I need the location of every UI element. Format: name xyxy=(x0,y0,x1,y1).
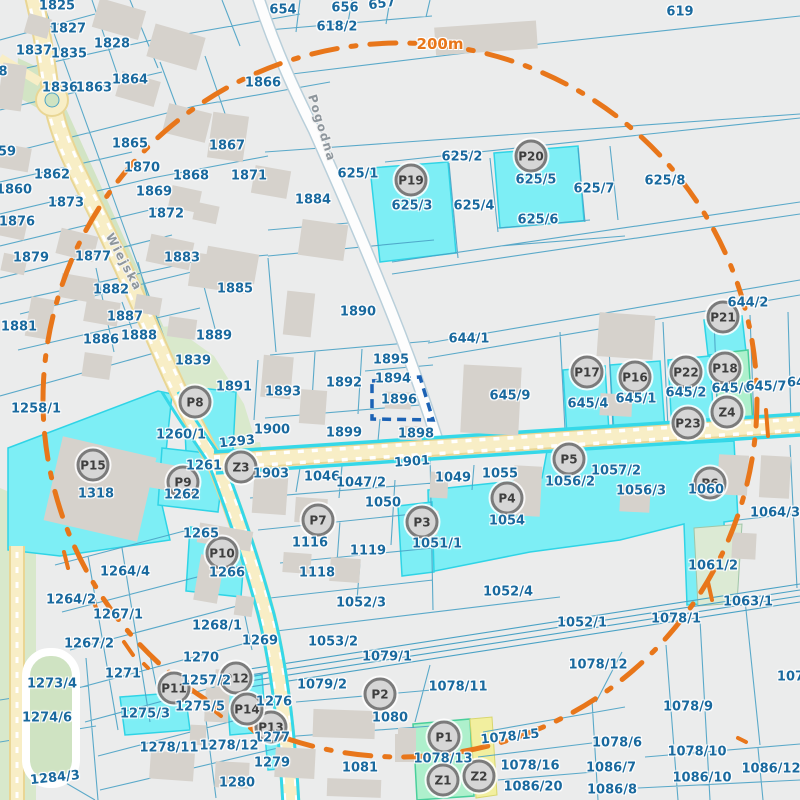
building xyxy=(81,352,112,380)
map-marker-P15[interactable]: P15 xyxy=(77,449,110,482)
map-marker-P20[interactable]: P20 xyxy=(515,140,548,173)
building xyxy=(599,393,632,417)
map-marker-P2[interactable]: P2 xyxy=(364,678,397,711)
building xyxy=(162,103,212,143)
building xyxy=(83,297,121,327)
map-marker-P16[interactable]: P16 xyxy=(619,361,652,394)
map-graphics xyxy=(0,0,800,800)
building xyxy=(146,23,205,70)
map-marker-P9[interactable]: P9 xyxy=(167,466,200,499)
building xyxy=(0,253,27,276)
building xyxy=(619,485,650,513)
building xyxy=(385,392,412,410)
building xyxy=(283,291,315,338)
building xyxy=(149,750,195,781)
radius-scale-label: 200m xyxy=(417,35,464,53)
map-marker-P14[interactable]: P14 xyxy=(231,693,264,726)
building xyxy=(92,0,146,40)
building xyxy=(759,455,791,499)
map-marker-P8[interactable]: P8 xyxy=(179,386,212,419)
building xyxy=(460,365,521,436)
map-marker-Z4[interactable]: Z4 xyxy=(711,396,744,429)
map-marker-P4[interactable]: P4 xyxy=(491,482,524,515)
map-marker-P22[interactable]: P22 xyxy=(670,356,703,389)
map-marker-P6[interactable]: P6 xyxy=(694,467,727,500)
building xyxy=(214,761,249,789)
building xyxy=(252,475,289,515)
map-marker-P18[interactable]: P18 xyxy=(709,352,742,385)
map-marker-P19[interactable]: P19 xyxy=(395,164,428,197)
map-marker-P11[interactable]: P11 xyxy=(158,672,191,705)
map-marker-P21[interactable]: P21 xyxy=(707,301,740,334)
map-marker-Z1[interactable]: Z1 xyxy=(427,764,460,797)
building xyxy=(189,725,206,746)
building xyxy=(167,316,198,340)
building xyxy=(299,389,327,425)
building xyxy=(313,709,376,739)
building xyxy=(329,557,361,583)
map-marker-Z3[interactable]: Z3 xyxy=(225,451,258,484)
map-marker-P12[interactable]: P12 xyxy=(220,662,253,695)
map-marker-P3[interactable]: P3 xyxy=(406,506,439,539)
map-marker-Z2[interactable]: Z2 xyxy=(463,760,496,793)
building xyxy=(251,165,291,199)
building xyxy=(282,552,311,574)
building xyxy=(207,112,249,163)
map-marker-P10[interactable]: P10 xyxy=(206,537,239,570)
map-marker-P17[interactable]: P17 xyxy=(571,356,604,389)
building xyxy=(327,778,382,798)
building xyxy=(192,202,219,225)
building xyxy=(260,355,294,399)
building xyxy=(298,219,349,261)
map-marker-P5[interactable]: P5 xyxy=(553,443,586,476)
building xyxy=(274,747,316,779)
building xyxy=(146,234,195,271)
map-marker-P7[interactable]: P7 xyxy=(302,504,335,537)
map-canvas[interactable]: P1P2P3P4P5P6P7P8P9P10P11P12P13P14P15P16P… xyxy=(0,0,800,800)
building xyxy=(731,532,756,559)
building xyxy=(115,71,161,107)
map-marker-P1[interactable]: P1 xyxy=(428,721,461,754)
building xyxy=(400,426,422,441)
building xyxy=(429,472,448,499)
map-marker-P23[interactable]: P23 xyxy=(672,407,705,440)
building xyxy=(597,312,656,360)
building xyxy=(234,595,255,617)
building xyxy=(0,216,28,241)
